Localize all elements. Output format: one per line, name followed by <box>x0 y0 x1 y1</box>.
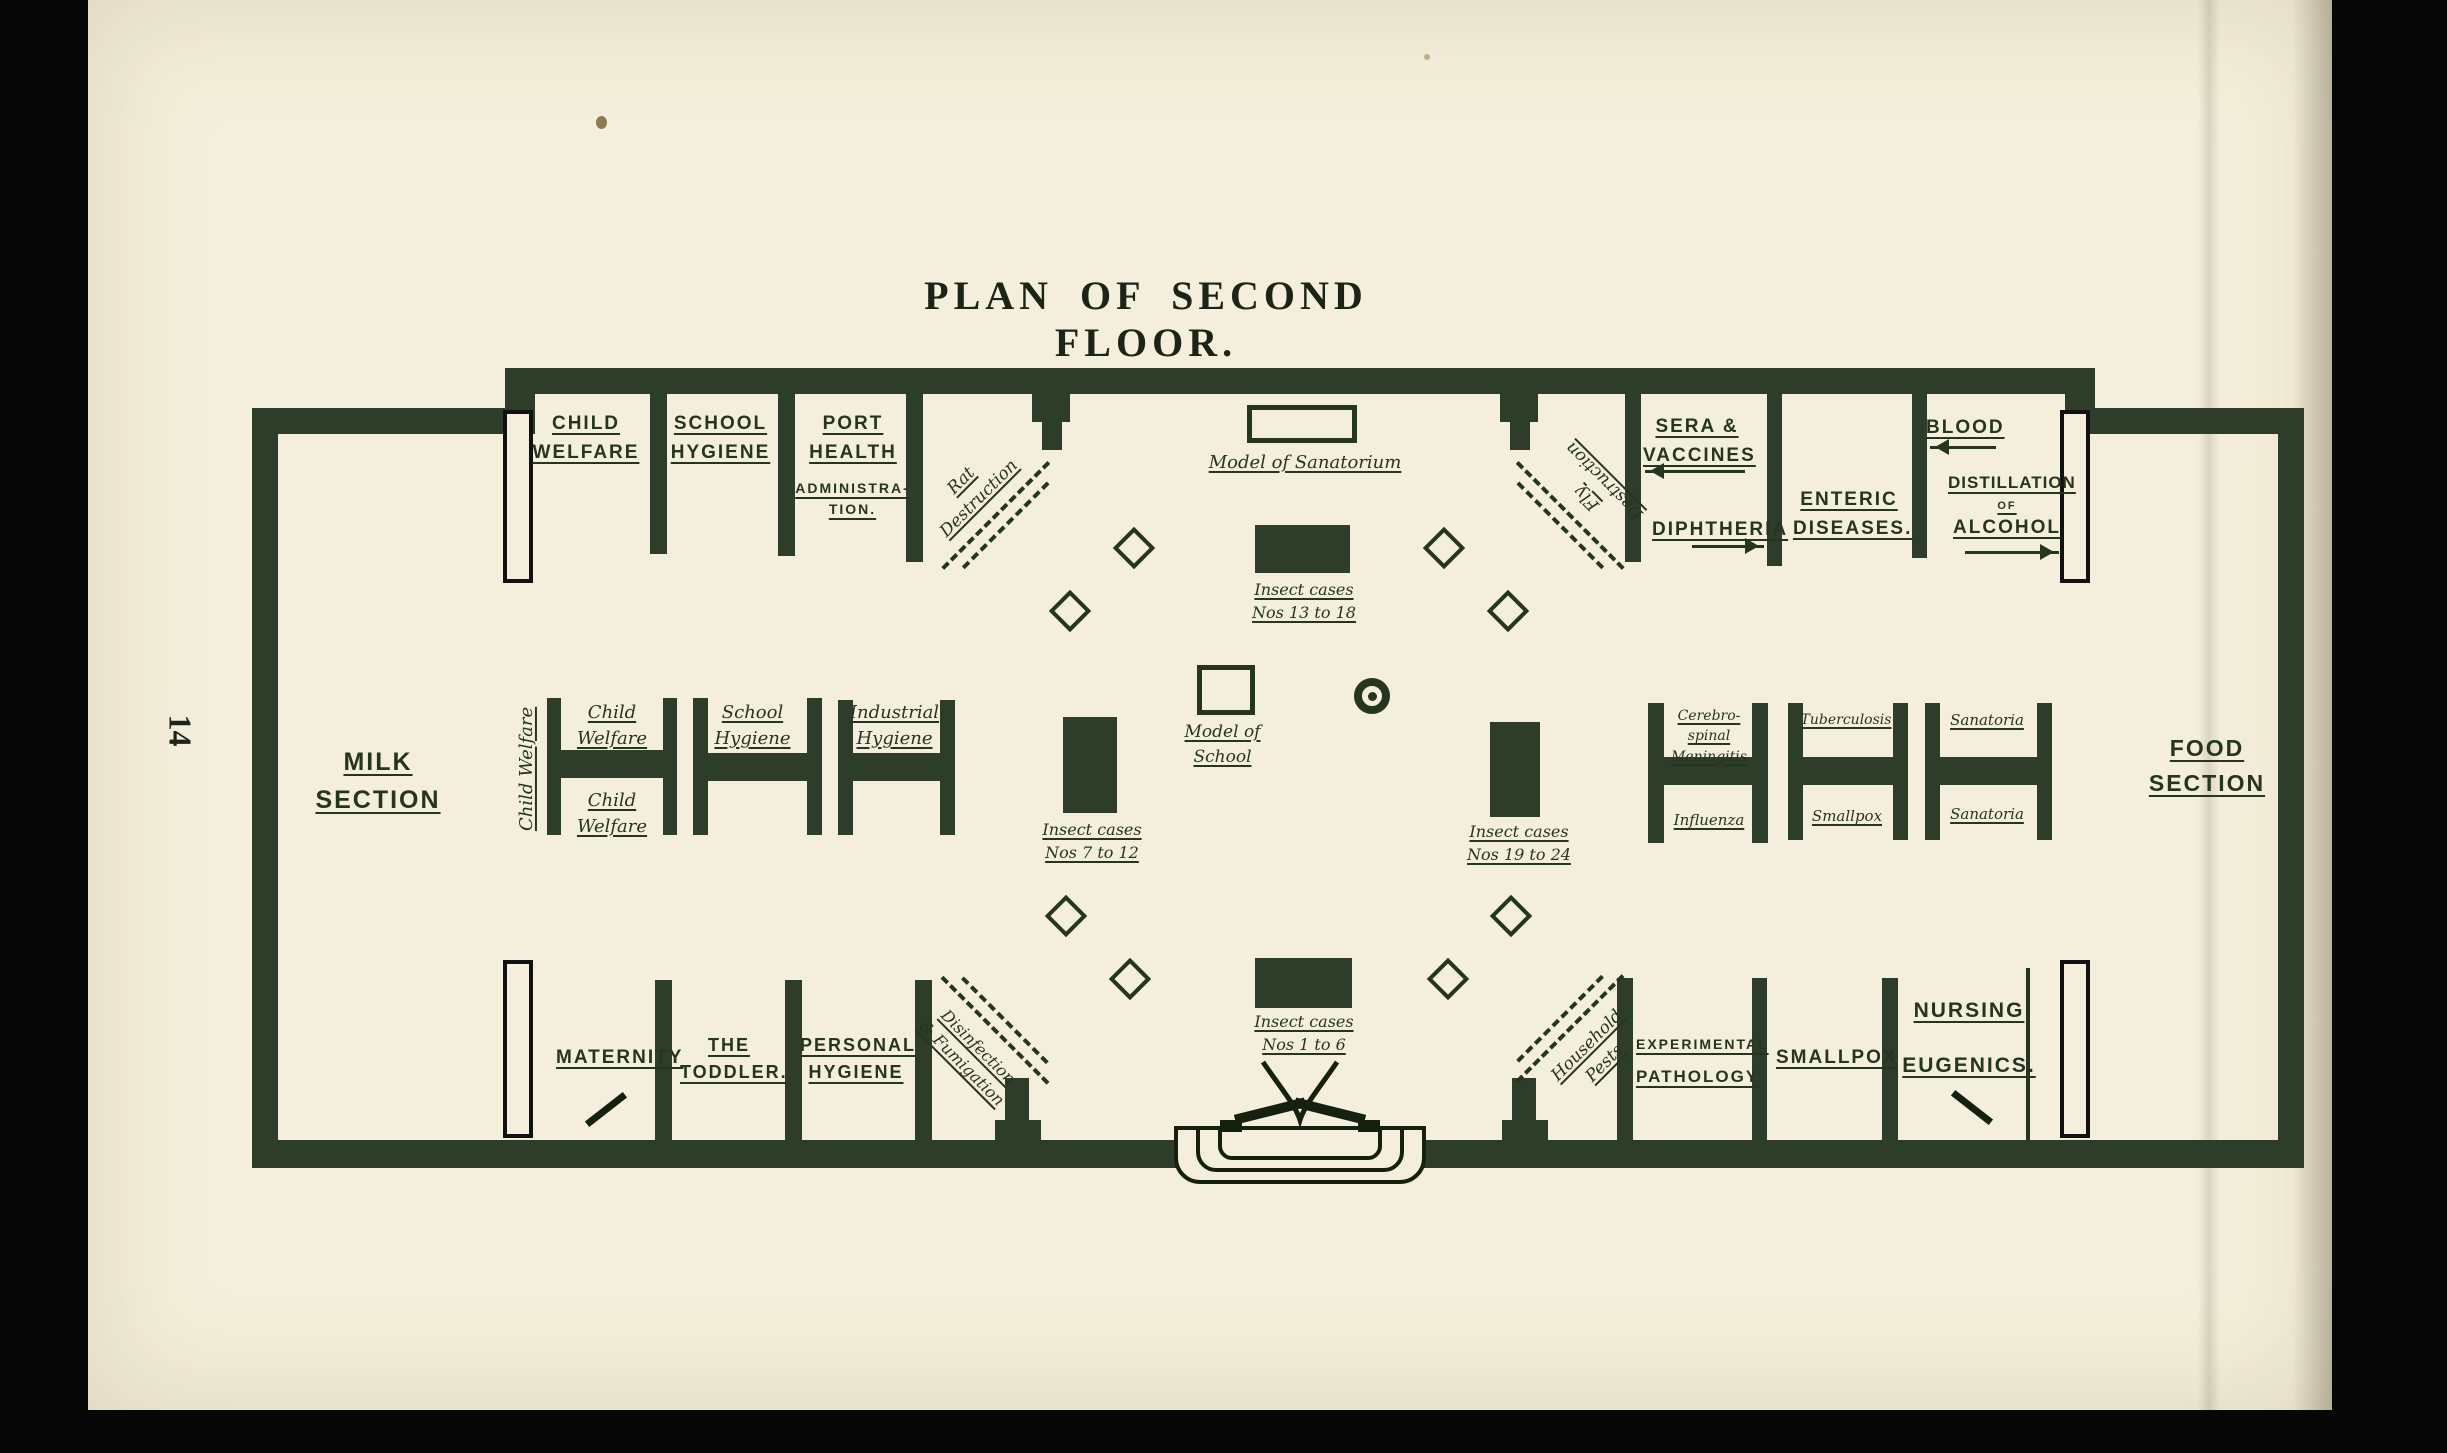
room-label-maternity: MATERNITY <box>556 1044 668 1073</box>
wall-top-left <box>252 408 517 434</box>
room-label-personal-hygiene: PERSONAL HYGIENE <box>800 1032 912 1086</box>
room-label-alcohol: ALCOHOL <box>1948 514 2066 543</box>
corner-pillar <box>2060 960 2090 1138</box>
hall-pier-left <box>1032 394 1070 422</box>
diamond-stand <box>1423 527 1465 569</box>
room-label-distillation-of: OF <box>1948 498 2066 515</box>
stand-h2 <box>693 753 822 781</box>
foxing-speck <box>596 116 607 129</box>
scanned-book-page: PLAN OF SECOND FLOOR. 14 <box>0 0 2447 1453</box>
stand-h5 <box>1788 757 1908 785</box>
corner-pillar <box>2060 410 2090 583</box>
door-swing-icon <box>1951 1090 1993 1125</box>
door-swing-icon <box>585 1092 627 1127</box>
room-label-port-health-sub: ADMINISTRA- TION. <box>795 478 910 520</box>
partition <box>778 394 795 556</box>
room-label-enteric: ENTERIC DISEASES. <box>1793 486 1905 543</box>
insect-case <box>1255 958 1352 1008</box>
model-school-label: Model of School <box>1160 720 1285 769</box>
model-sanatorium-case <box>1247 405 1357 443</box>
model-sanatorium-label: Model of Sanatorium <box>1205 450 1405 476</box>
insect-case-label: Insect cases Nos 7 to 12 <box>1028 818 1156 864</box>
stand-label: Sanatoria <box>1938 804 2036 826</box>
corner-pillar <box>503 410 533 583</box>
stand-side-label: Child Welfare <box>514 701 540 831</box>
wall-right <box>2278 408 2304 1168</box>
staircase-disinfection: Disinfection & Fumigation <box>895 965 1065 1125</box>
entrance-arrow-icon <box>1235 1056 1365 1134</box>
page-number: 14 <box>162 715 199 747</box>
room-label-experimental: EXPERIMENTAL <box>1636 1034 1754 1055</box>
room-label-sera-vaccines: SERA & VACCINES <box>1643 413 1751 470</box>
stand-label: Smallpox <box>1802 806 1892 828</box>
stand-side-label-text: Child Welfare <box>516 707 537 831</box>
arrow-right-icon <box>1965 551 2059 554</box>
room-label-distillation: DISTILLATION <box>1948 470 2066 496</box>
stand-label: Child Welfare <box>562 788 662 840</box>
arrow-left-icon <box>1645 470 1745 473</box>
diamond-stand <box>1490 895 1532 937</box>
page: PLAN OF SECOND FLOOR. 14 <box>88 0 2332 1410</box>
hall-pier-right <box>1500 394 1538 422</box>
model-school-case <box>1197 665 1255 715</box>
page-crease <box>2198 0 2220 1410</box>
room-label-pathology: PATHOLOGY <box>1636 1064 1754 1090</box>
stand-label: Industrial Hygiene <box>842 700 947 752</box>
figure-title: PLAN OF SECOND FLOOR. <box>896 272 1396 366</box>
room-label-nursing-eugenics: NURSING EUGENICS. <box>1900 984 2038 1093</box>
room-label-child-welfare: CHILD WELFARE <box>530 410 642 467</box>
room-label-toddler: THE TODDLER. <box>680 1032 778 1086</box>
stand-label: Tuberculosis <box>1800 710 1892 730</box>
insect-case <box>1255 525 1350 573</box>
stand-label: Child Welfare <box>562 700 662 752</box>
wall-top-main <box>505 368 2095 394</box>
section-label-food: FOOD SECTION <box>2148 731 2266 800</box>
insect-case-label: Insect cases Nos 19 to 24 <box>1455 820 1583 866</box>
room-label-school-hygiene: SCHOOL HYGIENE <box>663 410 778 467</box>
insect-case-label: Insect cases Nos 1 to 6 <box>1240 1010 1368 1056</box>
section-label-milk: MILK SECTION <box>313 744 443 819</box>
diamond-stand <box>1045 895 1087 937</box>
diamond-stand <box>1487 590 1529 632</box>
column-bullseye-icon <box>1354 678 1390 714</box>
diamond-stand <box>1109 958 1151 1000</box>
insect-case-label: Insect cases Nos 13 to 18 <box>1240 578 1368 624</box>
stand-h6 <box>1925 757 2052 785</box>
arrow-right-icon <box>1692 545 1764 548</box>
room-label-port-health: PORT HEALTH <box>798 410 908 467</box>
diamond-stand <box>1113 527 1155 569</box>
room-label-smallpox: SMALLPOX <box>1776 1044 1882 1073</box>
wall-left <box>252 408 278 1168</box>
corner-pillar <box>503 960 533 1138</box>
staircase-rat-destruction: Rat Destruction <box>895 420 1065 580</box>
arrow-left-icon <box>1930 446 1996 449</box>
stand-h1 <box>547 750 677 778</box>
diamond-stand <box>1049 590 1091 632</box>
stand-label: Cerebro- spinal Meningitis <box>1664 706 1754 767</box>
insect-case <box>1063 717 1117 813</box>
wall-top-right <box>2082 408 2304 434</box>
stand-label: Sanatoria <box>1938 710 2036 732</box>
stand-h3 <box>838 753 955 781</box>
partition <box>1912 394 1927 558</box>
staircase-label: Disinfection & Fumigation <box>914 999 1026 1111</box>
stand-label: School Hygiene <box>700 700 805 752</box>
partition <box>1752 978 1767 1140</box>
insect-case <box>1490 722 1540 817</box>
stand-label: Influenza <box>1662 810 1756 832</box>
foxing-speck <box>1424 54 1430 60</box>
staircase-label: Rat Destruction <box>917 437 1023 543</box>
diamond-stand <box>1427 958 1469 1000</box>
